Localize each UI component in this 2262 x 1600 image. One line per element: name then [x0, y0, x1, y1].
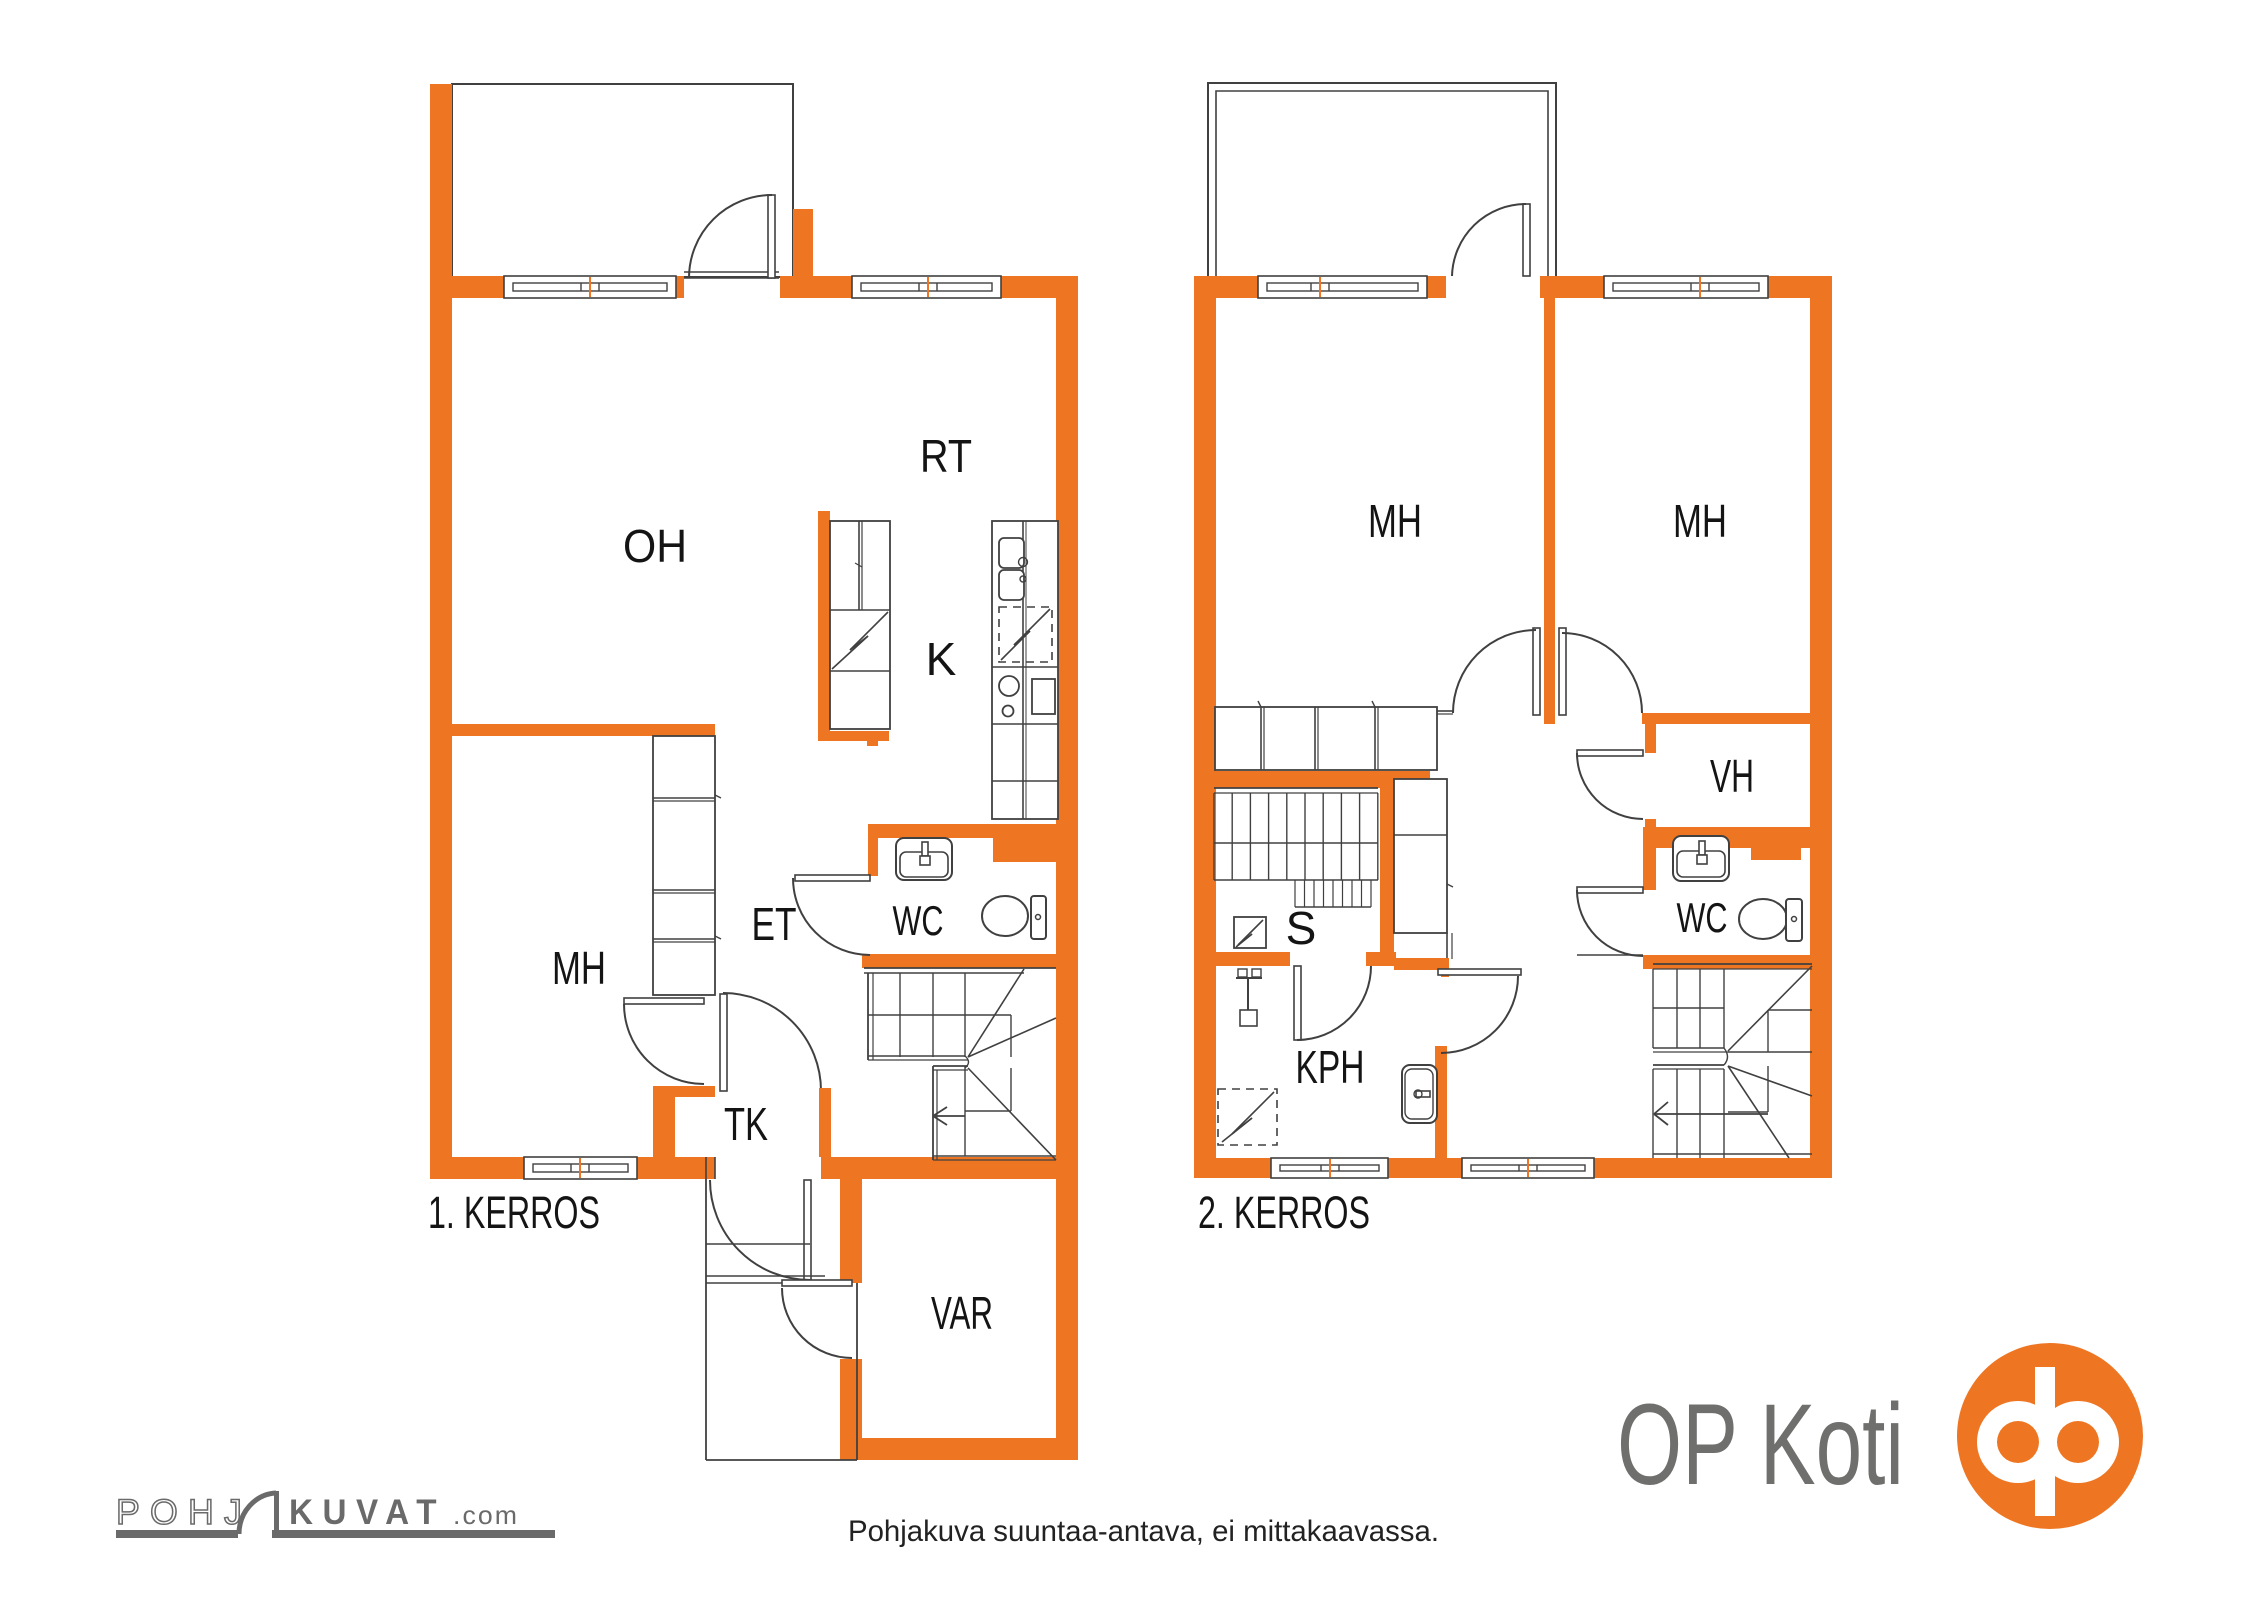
svg-text:VH: VH [1710, 750, 1754, 802]
svg-text:S: S [1286, 902, 1317, 954]
svg-text:WC: WC [1677, 894, 1728, 941]
svg-text:WC: WC [893, 897, 944, 944]
svg-text:1. KERROS: 1. KERROS [428, 1187, 600, 1238]
svg-text:POHJ: POHJ [116, 1493, 252, 1532]
svg-text:ET: ET [752, 898, 797, 950]
svg-text:TK: TK [724, 1098, 768, 1150]
svg-text:OP Koti: OP Koti [1617, 1381, 1904, 1509]
svg-text:.com: .com [453, 1500, 519, 1530]
svg-text:MH: MH [1368, 495, 1422, 547]
svg-text:RT: RT [920, 430, 972, 482]
svg-text:K: K [926, 633, 957, 685]
svg-text:KUVAT: KUVAT [289, 1493, 446, 1532]
svg-text:2. KERROS: 2. KERROS [1198, 1187, 1370, 1238]
svg-text:MH: MH [552, 942, 606, 994]
svg-text:OH: OH [623, 520, 687, 572]
svg-text:VAR: VAR [931, 1287, 993, 1339]
svg-text:MH: MH [1673, 495, 1727, 547]
svg-text:Pohjakuva suuntaa-antava, ei m: Pohjakuva suuntaa-antava, ei mittakaavas… [848, 1515, 1439, 1548]
svg-text:KPH: KPH [1296, 1041, 1365, 1093]
